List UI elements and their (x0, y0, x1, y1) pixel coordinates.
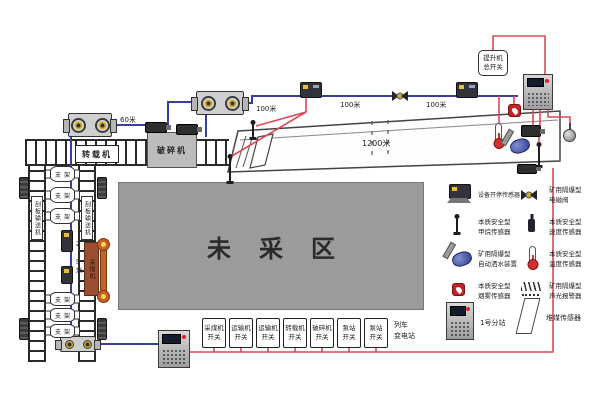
train-substation-label: 列车 变电站 (394, 320, 415, 341)
switch-box-conveyor-1: 运输机开关 (229, 318, 253, 348)
methane-sensor-belt-start (252, 124, 254, 138)
distance-100m-1: 100米 (256, 104, 276, 114)
belt-tail-pulley (517, 164, 537, 174)
smoke-sensor-belt-head (508, 104, 521, 117)
junction-terminal (201, 96, 216, 111)
solenoid-valve-icon (392, 91, 408, 101)
afc-drive-right-bottom (97, 318, 107, 340)
legend-item-equipment-run-stop (446, 184, 476, 206)
sound-light-alarm-legend-icon (521, 282, 541, 291)
switch-box-crusher: 破碎机开关 (310, 318, 334, 348)
belt-head-substation-panel (523, 74, 553, 110)
equipment-run-stop-sensor-icon (449, 184, 471, 199)
switch-box-pump-2: 泵站开关 (364, 318, 388, 348)
legend-label-speed: 本质安全型 速度传感器 (549, 218, 582, 238)
conveyor-right-name: 刮板输送机 (81, 196, 93, 240)
legend-label-water-spray: 矿用隔爆型 自动洒水装置 (478, 250, 517, 270)
hydraulic-support-4: 支架 (49, 292, 76, 306)
switch-box-pump-1: 泵站开关 (337, 318, 361, 348)
smoke-sensor-legend-icon (452, 283, 465, 296)
switch-box-transfer: 转载机开关 (283, 318, 307, 348)
face-cable-device-1 (61, 230, 73, 252)
switch-box-conveyor-2: 运输机开关 (256, 318, 280, 348)
transfer-machine-box: 转载机 (75, 145, 119, 163)
methane-sensor-legend-icon (456, 218, 458, 233)
legend-label-alarm: 矿用隔爆型 声光报警器 (549, 282, 582, 302)
junction-terminal (225, 96, 240, 111)
hydraulic-support-2: 支架 (49, 187, 76, 203)
hydraulic-support-1: 支架 (49, 166, 76, 182)
legend-label-solenoid-valve: 矿用隔爆型 电磁阀 (549, 186, 582, 206)
distance-2-5m: 2.5米 (73, 240, 83, 275)
distance-1200m: 1200米 (362, 138, 390, 149)
run-stop-sensor-1 (300, 82, 322, 98)
coal-pile-sensor-belt-start (229, 158, 231, 182)
junction-box-2 (196, 91, 244, 115)
shearer-label: 采煤机 (87, 259, 96, 280)
junction-box-face-end (60, 336, 96, 352)
distance-100m-2: 100米 (340, 100, 360, 110)
crusher-box: 破碎机 (147, 132, 197, 168)
hoist-switch-line2: 总开关 (483, 63, 503, 72)
run-stop-sensor-2 (456, 82, 478, 98)
transfer-machine-label: 转载机 (82, 149, 112, 160)
speed-sensor-legend-icon (528, 219, 535, 232)
legend-label-temperature: 本质安全型 温度传感器 (549, 250, 582, 270)
switch-box-shearer: 采煤机开关 (202, 318, 226, 348)
hydraulic-support-6: 支架 (49, 324, 76, 338)
junction-terminal (95, 118, 110, 133)
legend-label-equipment-run-stop: 设备开停传感器 (478, 191, 520, 200)
temperature-sensor-legend-icon (529, 246, 536, 266)
afc-drive-left-top (19, 177, 29, 199)
junction-terminal (83, 340, 92, 349)
methane-sensor-belt-head (538, 146, 540, 166)
face-substation-panel (158, 330, 190, 368)
shearer-drum-dot-bottom (101, 294, 106, 299)
junction-terminal (65, 340, 74, 349)
crusher-motor-1 (145, 122, 167, 133)
conveyor-left-name: 刮板输送机 (31, 196, 43, 240)
junction-box-1 (68, 113, 112, 137)
mine-monitoring-diagram: 未采区 (0, 0, 600, 400)
shearer-drum-dot-top (101, 242, 106, 247)
shearer-body: 采煤机 (84, 242, 99, 296)
hoist-switch-line1: 提升机 (483, 54, 503, 63)
belt-drive-motor (521, 125, 541, 137)
crusher-label: 破碎机 (157, 145, 187, 156)
legend-label-coal-pile: 堆煤传感器 (546, 313, 581, 324)
legend-label-station: 1号分站 (480, 318, 505, 329)
shearer-arm (100, 248, 107, 294)
afc-drive-left-bottom (19, 318, 29, 340)
sound-light-alarm-ball (563, 129, 576, 142)
afc-drive-right-top (97, 177, 107, 199)
station-legend-icon (446, 302, 474, 340)
hydraulic-support-5: 支架 (49, 308, 76, 322)
distance-60m: 60米 (120, 115, 136, 125)
legend-label-smoke: 本质安全型 烟雾传感器 (478, 282, 511, 302)
legend-label-methane: 本质安全型 甲烷传感器 (478, 218, 511, 238)
hoist-main-switch-box: 提升机 总开关 (478, 50, 508, 76)
face-cable-device-2 (61, 266, 73, 284)
hydraulic-support-3: 支架 (49, 208, 76, 224)
distance-100m-3: 100米 (426, 100, 446, 110)
solenoid-valve-legend-icon (521, 190, 537, 200)
junction-terminal (71, 118, 86, 133)
crusher-motor-2 (176, 124, 198, 135)
